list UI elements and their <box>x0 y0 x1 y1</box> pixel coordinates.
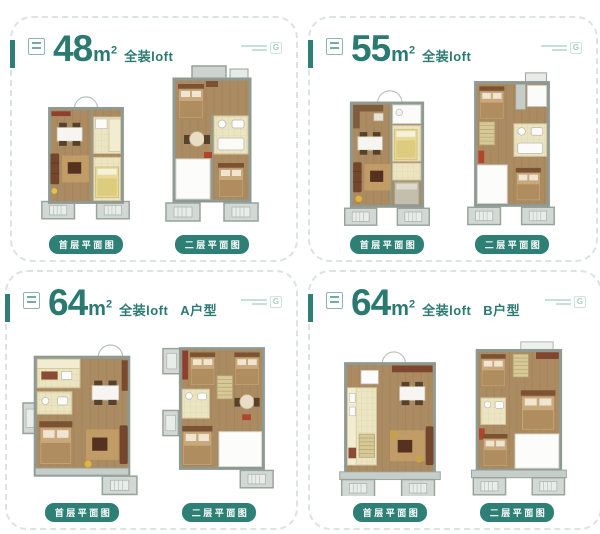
card-header: 55 m2 全装loft G <box>326 28 582 71</box>
first-floor-plan-image <box>340 87 434 228</box>
brand-logo-icon: G <box>541 42 582 54</box>
area-unit: m2 <box>88 298 112 321</box>
first-floor-plan-image <box>21 344 143 497</box>
accent-bar <box>308 294 313 322</box>
accent-bar <box>10 40 15 68</box>
accent-bar <box>308 40 313 68</box>
area-number: 48 <box>53 28 92 71</box>
area-number: 64 <box>48 282 87 325</box>
unit-variant: A户型 <box>180 300 217 319</box>
first-floor-label-pill: 首层平面图 <box>45 503 120 522</box>
second-floor-label-pill: 二层平面图 <box>480 503 555 522</box>
first-floor-plan: 首层平面图 <box>332 351 448 522</box>
plans-area: 首层平面图 二层平面图 <box>7 324 296 522</box>
second-floor-plan: 二层平面图 <box>460 339 574 522</box>
brand-seal-icon <box>326 38 343 55</box>
loft-subtitle: 全装loft <box>422 300 471 319</box>
plans-area: 首层平面图 二层平面图 <box>310 324 600 522</box>
panel-title: 55 m2 全装loft <box>351 28 483 71</box>
plans-area: 首层平面图 二层平面图 <box>310 70 596 254</box>
second-floor-plan-image <box>161 337 277 497</box>
floorplan-card-55: 55 m2 全装loft G <box>308 16 598 262</box>
first-floor-label-pill: 首层平面图 <box>49 235 124 254</box>
second-floor-plan: 二层平面图 <box>161 337 277 523</box>
second-floor-plan: 二层平面图 <box>162 63 262 254</box>
first-floor-label-pill: 首层平面图 <box>350 235 425 254</box>
first-floor-label-pill: 首层平面图 <box>353 503 428 522</box>
second-floor-label-pill: 二层平面图 <box>175 235 250 254</box>
panel-title: 64 m2 全装loft B户型 <box>351 282 520 325</box>
floorplan-card-48: 48 m2 全装loft G <box>10 16 298 262</box>
brand-seal-icon <box>326 292 343 309</box>
second-floor-plan-image <box>460 339 574 496</box>
second-floor-label-pill: 二层平面图 <box>182 503 257 522</box>
brand-logo-icon: G <box>241 296 282 308</box>
second-floor-plan-image <box>464 70 560 228</box>
card-header: 64 m2 全装loft B户型 G <box>326 282 586 325</box>
second-floor-plan-image <box>162 63 262 228</box>
unit-variant: B户型 <box>483 300 520 319</box>
accent-bar <box>5 294 10 322</box>
first-floor-plan-image <box>332 351 448 496</box>
floorplan-card-64a: 64 m2 全装loft A户型 G <box>5 270 298 530</box>
loft-subtitle: 全装loft <box>422 46 471 65</box>
floorplan-card-64b: 64 m2 全装loft B户型 G <box>308 270 600 530</box>
card-header: 64 m2 全装loft A户型 G <box>23 282 282 325</box>
area-number: 64 <box>351 282 390 325</box>
first-floor-plan: 首层平面图 <box>38 94 134 254</box>
area-number: 55 <box>351 28 390 71</box>
brand-seal-icon <box>23 292 40 309</box>
area-unit: m2 <box>391 44 415 67</box>
area-unit: m2 <box>391 298 415 321</box>
brand-logo-icon: G <box>241 42 282 54</box>
loft-subtitle: 全装loft <box>119 300 168 319</box>
plans-area: 首层平面图 二层平面图 <box>12 70 296 254</box>
brand-logo-icon: G <box>545 296 586 308</box>
second-floor-plan: 二层平面图 <box>464 70 560 254</box>
area-unit: m2 <box>93 44 117 67</box>
panel-title: 64 m2 全装loft A户型 <box>48 282 217 325</box>
first-floor-plan: 首层平面图 <box>340 87 434 254</box>
brand-seal-icon <box>28 38 45 55</box>
first-floor-plan: 首层平面图 <box>21 344 143 523</box>
second-floor-label-pill: 二层平面图 <box>475 235 550 254</box>
first-floor-plan-image <box>38 94 134 228</box>
